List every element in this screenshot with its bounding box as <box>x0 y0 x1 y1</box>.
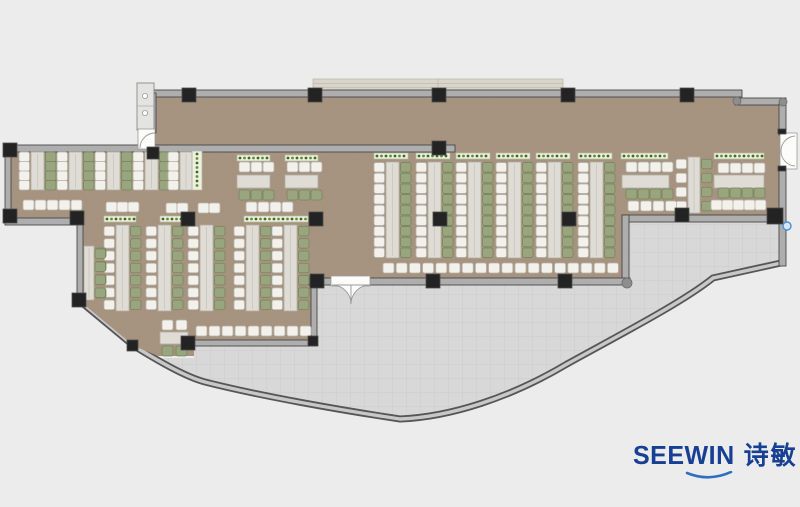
chair-white <box>71 200 82 210</box>
chair-white <box>456 173 467 183</box>
structural-column <box>561 88 575 102</box>
floorplan-svg <box>0 0 800 507</box>
chair-white <box>95 171 106 181</box>
chair-white <box>209 203 220 213</box>
chair-white <box>248 326 259 336</box>
chair-white <box>251 162 262 172</box>
chair-white <box>578 205 589 215</box>
chair-green <box>122 181 133 191</box>
planter-plant-dot <box>467 155 470 158</box>
chair-green <box>84 162 95 172</box>
planter-plant-dot <box>542 155 545 158</box>
planter-plant-dot <box>243 157 246 160</box>
chair-green <box>718 188 729 198</box>
chair-white <box>274 326 285 336</box>
chair-white <box>117 202 128 212</box>
chair-white <box>578 216 589 226</box>
chair-white <box>300 326 311 336</box>
structural-column <box>432 88 446 102</box>
structural-column <box>147 147 159 159</box>
structural-column <box>72 293 86 307</box>
planter-plant-dot <box>589 155 592 158</box>
chair-green <box>401 173 412 183</box>
chair-green <box>173 288 184 298</box>
planter-plant-dot <box>650 155 653 158</box>
chair-white <box>374 216 385 226</box>
planter-plant-dot <box>166 218 169 221</box>
chair-green <box>173 239 184 249</box>
planter-plant-dot <box>252 157 255 160</box>
chair-white <box>496 184 507 194</box>
chair-white <box>374 237 385 247</box>
planter-plant-dot <box>196 184 199 187</box>
structural-column <box>3 209 17 223</box>
chair-white <box>456 216 467 226</box>
chair-white <box>449 263 460 273</box>
structural-column <box>310 274 324 288</box>
chair-white <box>234 239 245 249</box>
chair-green <box>563 173 574 183</box>
chair-green <box>702 159 713 169</box>
planter-plant-dot <box>305 157 308 160</box>
chair-green <box>638 189 649 199</box>
chair-white <box>168 171 179 181</box>
planter-plant-dot <box>547 155 550 158</box>
chair-green <box>173 276 184 286</box>
chair-green <box>730 188 741 198</box>
chair-white <box>374 163 385 173</box>
planter-plant-dot <box>551 155 554 158</box>
desk <box>622 175 669 188</box>
chair-green <box>702 201 713 211</box>
planter-plant-dot <box>394 155 397 158</box>
chair-white <box>188 276 199 286</box>
chair-white <box>196 326 207 336</box>
chair-white <box>409 263 420 273</box>
brand-chinese: 诗敏 <box>744 444 798 469</box>
chair-green <box>261 251 272 261</box>
chair-green <box>742 188 753 198</box>
planter-plant-dot <box>277 218 280 221</box>
planter-plant-dot <box>511 155 514 158</box>
chair-green <box>605 237 616 247</box>
desk <box>285 175 318 188</box>
chair-green <box>261 288 272 298</box>
structural-column <box>70 211 84 225</box>
chair-white <box>676 187 687 197</box>
floorplan-viewport: SEEWIN 诗敏 <box>0 0 800 507</box>
planter-plant-dot <box>502 155 505 158</box>
chair-white <box>456 237 467 247</box>
chair-green <box>95 262 106 272</box>
chair-white <box>436 263 447 273</box>
chair-green <box>239 190 250 200</box>
chair-white <box>188 288 199 298</box>
chair-white <box>19 152 30 162</box>
chair-white <box>578 195 589 205</box>
planter-plant-dot <box>593 155 596 158</box>
chair-green <box>84 171 95 181</box>
planter-plant-dot <box>584 155 587 158</box>
planter-plant-dot <box>747 155 750 158</box>
planter-plant-dot <box>663 155 666 158</box>
chair-white <box>581 263 592 273</box>
chair-white <box>146 288 157 298</box>
chair-white <box>246 202 257 212</box>
chair-green <box>215 263 226 273</box>
planter-plant-dot <box>738 155 741 158</box>
chair-green <box>563 237 574 247</box>
chair-white <box>19 181 30 191</box>
chair-green <box>650 189 661 199</box>
planter-plant-dot <box>580 155 583 158</box>
chair-green <box>443 163 454 173</box>
chair-green <box>626 189 637 199</box>
planter-plant-dot <box>255 218 258 221</box>
planter-plant-dot <box>422 155 425 158</box>
planter-plant-dot <box>196 175 199 178</box>
chair-white <box>146 239 157 249</box>
chair-green <box>299 276 310 286</box>
chair-white <box>239 162 250 172</box>
planter-plant-dot <box>287 157 290 160</box>
planter-plant-dot <box>623 155 626 158</box>
chair-white <box>188 263 199 273</box>
wall-segment <box>735 98 786 105</box>
chair-white <box>146 263 157 273</box>
structural-column <box>308 88 322 102</box>
chair-white <box>374 173 385 183</box>
planter-plant-dot <box>196 157 199 160</box>
planter-plant-dot <box>602 155 605 158</box>
planter-plant-dot <box>133 218 136 221</box>
fixture-knob <box>142 93 147 98</box>
fixture-knob <box>142 110 147 115</box>
chair-white <box>59 200 70 210</box>
chair-green <box>605 184 616 194</box>
brand-logo: SEEWIN 诗敏 <box>633 444 800 490</box>
chair-white <box>168 152 179 162</box>
chair-green <box>483 227 494 237</box>
planter-plant-dot <box>627 155 630 158</box>
chair-white <box>287 162 298 172</box>
chair-green <box>299 300 310 310</box>
desk <box>237 175 270 188</box>
chair-white <box>234 251 245 261</box>
chair-green <box>483 237 494 247</box>
planter-plant-dot <box>196 166 199 169</box>
planter-plant-dot <box>480 155 483 158</box>
annotation-marker <box>783 222 791 230</box>
chair-white <box>578 248 589 258</box>
wall-segment <box>5 145 455 152</box>
planter-plant-dot <box>716 155 719 158</box>
chair-white <box>146 226 157 236</box>
chair-white <box>416 184 427 194</box>
chair-white <box>166 203 177 213</box>
chair-white <box>416 195 427 205</box>
chair-green <box>662 189 673 199</box>
chair-white <box>146 251 157 261</box>
chair-green <box>563 227 574 237</box>
planter-plant-dot <box>418 155 421 158</box>
chair-white <box>594 263 605 273</box>
chair-white <box>489 263 500 273</box>
chair-green <box>401 184 412 194</box>
chair-green <box>401 216 412 226</box>
wall-segment <box>153 90 742 97</box>
chair-green <box>605 195 616 205</box>
chair-green <box>443 248 454 258</box>
chair-white <box>456 205 467 215</box>
chair-white <box>541 263 552 273</box>
chair-white <box>536 227 547 237</box>
chair-white <box>733 200 744 210</box>
chair-green <box>131 276 142 286</box>
planter-plant-dot <box>314 157 317 160</box>
planter-plant-dot <box>171 218 174 221</box>
chair-green <box>523 237 534 247</box>
structural-column <box>558 274 572 288</box>
structural-column <box>182 88 196 102</box>
structural-column <box>3 143 17 157</box>
planter-plant-dot <box>654 155 657 158</box>
chair-green <box>131 239 142 249</box>
chair-white <box>578 227 589 237</box>
brand-swoosh-icon <box>685 471 733 481</box>
chair-green <box>401 163 412 173</box>
planter-plant-dot <box>476 155 479 158</box>
chair-white <box>133 171 144 181</box>
chair-white <box>261 326 272 336</box>
chair-white <box>496 216 507 226</box>
chair-white <box>502 263 513 273</box>
chair-white <box>57 152 68 162</box>
planter-plant-dot <box>485 155 488 158</box>
planter-plant-dot <box>128 218 131 221</box>
chair-green <box>215 226 226 236</box>
chair-white <box>23 200 34 210</box>
chair-green <box>122 152 133 162</box>
chair-white <box>416 237 427 247</box>
chair-green <box>46 171 57 181</box>
chair-white <box>146 300 157 310</box>
chair-green <box>162 346 173 356</box>
planter-plant-dot <box>632 155 635 158</box>
chair-white <box>607 263 618 273</box>
planter-plant-dot <box>196 162 199 165</box>
brand-wordmark: SEEWIN <box>633 444 735 470</box>
planter-plant-dot <box>246 218 249 221</box>
chair-green <box>605 173 616 183</box>
chair-green <box>299 190 310 200</box>
chair-white <box>270 202 281 212</box>
structural-column <box>309 212 323 226</box>
chair-green <box>443 227 454 237</box>
planter-plant-dot <box>291 218 294 221</box>
chair-green <box>563 248 574 258</box>
chair-white <box>287 326 298 336</box>
chair-green <box>261 226 272 236</box>
planter-plant-dot <box>761 155 764 158</box>
planter-plant-dot <box>756 155 759 158</box>
chair-white <box>198 203 209 213</box>
structural-column <box>127 340 138 351</box>
chair-white <box>235 326 246 336</box>
planter-plant-dot <box>296 157 299 160</box>
chair-green <box>95 249 106 259</box>
chair-white <box>263 162 274 172</box>
chair-green <box>483 248 494 258</box>
planter-plant-dot <box>725 155 728 158</box>
planter-plant-dot <box>273 218 276 221</box>
planter-plant-dot <box>659 155 662 158</box>
chair-white <box>578 184 589 194</box>
planter-plant-dot <box>309 157 312 160</box>
planter-plant-dot <box>282 218 285 221</box>
planter-plant-dot <box>458 155 461 158</box>
chair-white <box>496 173 507 183</box>
chair-white <box>650 162 661 172</box>
chair-white <box>104 226 115 236</box>
chair-green <box>263 190 274 200</box>
chair-white <box>456 184 467 194</box>
chair-white <box>496 195 507 205</box>
chair-green <box>131 263 142 273</box>
planter-plant-dot <box>598 155 601 158</box>
chair-white <box>57 162 68 172</box>
planter-plant-dot <box>556 155 559 158</box>
chair-green <box>261 263 272 273</box>
structural-column <box>181 336 195 350</box>
planter-plant-dot <box>266 157 269 160</box>
planter-plant-dot <box>398 155 401 158</box>
chair-white <box>416 216 427 226</box>
planter-plant-dot <box>516 155 519 158</box>
chair-white <box>755 200 766 210</box>
chair-white <box>568 263 579 273</box>
chair-white <box>374 205 385 215</box>
chair-green <box>173 263 184 273</box>
chair-white <box>374 195 385 205</box>
planter-plant-dot <box>248 157 251 160</box>
chair-green <box>299 226 310 236</box>
planter-plant-dot <box>124 218 127 221</box>
chair-white <box>456 195 467 205</box>
chair-white <box>496 248 507 258</box>
chair-white <box>536 163 547 173</box>
chair-green <box>131 226 142 236</box>
wall-segment <box>77 218 83 302</box>
chair-white <box>653 201 664 211</box>
chair-white <box>234 263 245 273</box>
chair-white <box>272 263 283 273</box>
chair-white <box>496 205 507 215</box>
structural-column <box>426 274 440 288</box>
chair-green <box>173 226 184 236</box>
chair-white <box>188 300 199 310</box>
chair-green <box>483 205 494 215</box>
planter-plant-dot <box>286 218 289 221</box>
chair-green <box>563 163 574 173</box>
planter-plant-dot <box>264 218 267 221</box>
chair-white <box>462 263 473 273</box>
chair-white <box>578 237 589 247</box>
chair-green <box>287 190 298 200</box>
planter-plant-dot <box>291 157 294 160</box>
planter-plant-dot <box>641 155 644 158</box>
planter-strip <box>244 216 308 222</box>
chair-white <box>188 239 199 249</box>
chair-white <box>528 263 539 273</box>
chair-white <box>104 239 115 249</box>
planter-plant-dot <box>196 171 199 174</box>
chair-white <box>555 263 566 273</box>
chair-green <box>443 184 454 194</box>
chair-white <box>676 159 687 169</box>
chair-white <box>742 163 753 173</box>
chair-green <box>131 300 142 310</box>
structural-column <box>432 141 446 155</box>
chair-green <box>523 163 534 173</box>
structural-column <box>680 88 694 102</box>
chair-green <box>523 227 534 237</box>
chair-white <box>416 205 427 215</box>
chair-green <box>754 188 765 198</box>
planter-plant-dot <box>720 155 723 158</box>
chair-green <box>443 173 454 183</box>
planter-plant-dot <box>636 155 639 158</box>
wall-segment <box>622 215 629 285</box>
planter-plant-dot <box>300 157 303 160</box>
structural-column <box>767 208 783 224</box>
chair-green <box>605 163 616 173</box>
chair-green <box>401 237 412 247</box>
chair-white <box>95 181 106 191</box>
chair-white <box>416 248 427 258</box>
planter-plant-dot <box>743 155 746 158</box>
chair-green <box>131 251 142 261</box>
chair-green <box>523 184 534 194</box>
chair-white <box>396 263 407 273</box>
structural-column <box>778 166 786 171</box>
chair-green <box>173 251 184 261</box>
chair-white <box>515 263 526 273</box>
chair-green <box>523 195 534 205</box>
planter-plant-dot <box>300 218 303 221</box>
structural-column <box>308 336 318 346</box>
chair-white <box>95 162 106 172</box>
chair-green <box>215 251 226 261</box>
chair-white <box>456 163 467 173</box>
chair-green <box>122 162 133 172</box>
chair-white <box>496 163 507 173</box>
chair-white <box>106 202 117 212</box>
chair-white <box>416 227 427 237</box>
chair-white <box>496 227 507 237</box>
chair-white <box>536 195 547 205</box>
chair-white <box>730 163 741 173</box>
wall-node <box>622 278 632 288</box>
chair-white <box>209 326 220 336</box>
planter-plant-dot <box>119 218 122 221</box>
planter-plant-dot <box>471 155 474 158</box>
planter-plant-dot <box>239 157 242 160</box>
chair-white <box>177 203 188 213</box>
chair-white <box>35 200 46 210</box>
chair-white <box>676 173 687 183</box>
chair-white <box>638 162 649 172</box>
